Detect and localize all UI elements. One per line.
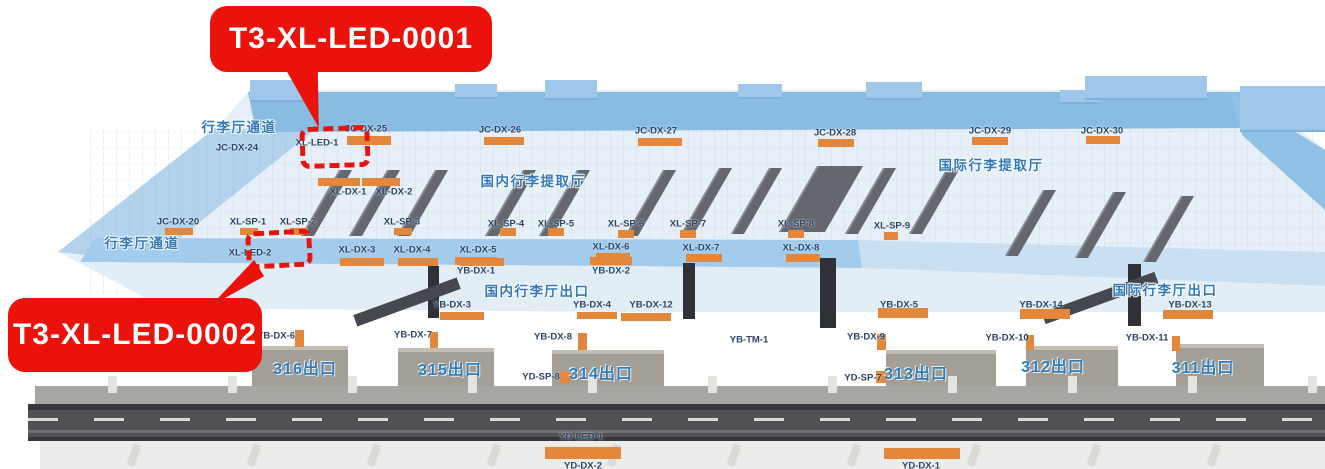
device-orange-marker — [1172, 336, 1180, 351]
roof-block — [1060, 90, 1100, 104]
device-label-YB-DX-12: YB-DX-12 — [629, 300, 672, 311]
sidewalk-pillar — [348, 376, 357, 393]
device-label-YB-DX-7: YB-DX-7 — [394, 330, 432, 341]
device-label-XL-SP-4: XL-SP-4 — [488, 219, 524, 230]
exit-label-311出口: 311出口 — [1172, 354, 1235, 378]
device-orange-bar — [440, 312, 484, 320]
device-orange-bar — [972, 137, 1008, 145]
device-label-YD-SP-8: YD-SP-8 — [522, 372, 559, 383]
device-label-JC-DX-29: JC-DX-29 — [969, 126, 1011, 137]
exit-label-314出口: 314出口 — [569, 360, 633, 384]
sidewalk-pillar — [228, 376, 237, 393]
device-label-YB-DX-3: YB-DX-3 — [433, 300, 471, 311]
top-corridor — [240, 90, 1325, 135]
device-label-YB-DX-10: YB-DX-10 — [985, 333, 1028, 344]
device-orange-bar — [686, 254, 722, 262]
device-label-JC-DX-20: JC-DX-20 — [157, 217, 199, 228]
device-label-YD-SP-7: YD-SP-7 — [844, 373, 881, 384]
sidewalk-pillar — [1188, 376, 1197, 393]
device-orange-bar — [638, 138, 682, 146]
device-label-XL-DX-2: XL-DX-2 — [376, 187, 413, 198]
road-edge-top — [28, 404, 1325, 410]
device-label-YD-DX-1: YD-DX-1 — [902, 461, 940, 469]
exit-label-316出口: 316出口 — [273, 355, 337, 379]
device-orange-bar — [1086, 136, 1120, 144]
area-label-国际行李提取厅: 国际行李提取厅 — [939, 154, 1044, 174]
apron-pillar — [247, 443, 261, 466]
apron — [40, 441, 1325, 469]
device-orange-bar — [818, 139, 854, 147]
apron-pillar — [967, 443, 981, 466]
device-orange-bar — [394, 228, 412, 235]
device-label-XL-DX-7: XL-DX-7 — [683, 243, 720, 254]
right-lower-band — [850, 238, 1325, 288]
road-stripe — [28, 430, 1325, 433]
baggage-carousel — [1143, 196, 1194, 262]
callout-led-0002: T3-XL-LED-0002 — [8, 298, 262, 372]
device-orange-bar — [884, 448, 960, 459]
device-label-YD-DX-2: YD-DX-2 — [564, 461, 602, 469]
device-orange-bar — [362, 178, 400, 186]
device-label-XL-SP-8: XL-SP-8 — [778, 219, 814, 230]
sidewalk — [35, 386, 1325, 408]
device-label-JC-DX-30: JC-DX-30 — [1081, 126, 1123, 137]
device-orange-bar — [618, 230, 634, 238]
device-orange-bar — [1163, 310, 1213, 319]
device-label-YB-DX-4: YB-DX-4 — [573, 300, 611, 311]
area-label-行李厅通道: 行李厅通道 — [202, 116, 277, 136]
device-label-XL-DX-5: XL-DX-5 — [460, 245, 497, 256]
area-label-行李厅通道: 行李厅通道 — [105, 232, 180, 252]
device-label-XL-SP-2: XL-SP-2 — [280, 217, 316, 228]
device-orange-marker — [295, 330, 304, 347]
device-orange-bar — [1020, 309, 1070, 319]
device-label-YB-DX-11: YB-DX-11 — [1126, 333, 1169, 344]
exit-label-313出口: 313出口 — [884, 360, 948, 384]
apron-pillar — [727, 443, 741, 466]
roof-block — [1240, 86, 1325, 132]
device-orange-marker — [578, 333, 587, 350]
info-tower — [683, 263, 695, 319]
baggage-carousel — [1005, 190, 1056, 256]
device-label-JC-DX-27: JC-DX-27 — [635, 126, 677, 137]
apron-pillar — [367, 443, 381, 466]
device-label-XL-SP-7: XL-SP-7 — [670, 219, 706, 230]
device-orange-bar — [788, 230, 804, 238]
device-orange-bar — [455, 257, 497, 265]
right-wing — [1180, 88, 1325, 213]
device-label-JC-DX-24: JC-DX-24 — [216, 143, 258, 154]
road — [28, 410, 1325, 440]
device-orange-bar — [398, 258, 438, 266]
device-orange-bar — [318, 178, 360, 186]
apron-pillar — [1207, 443, 1221, 466]
sidewalk-pillar — [708, 376, 717, 393]
baggage-carousel — [731, 168, 782, 234]
apron-pillar — [1087, 443, 1101, 466]
device-label-YB-DX-9: YB-DX-9 — [847, 332, 885, 343]
device-label-XL-DX-6: XL-DX-6 — [593, 242, 630, 253]
device-label-YB-DX-14: YB-DX-14 — [1019, 300, 1062, 311]
apron-pillar — [127, 443, 141, 466]
area-label-国际行李厅出口: 国际行李厅出口 — [1113, 279, 1218, 299]
device-label-JC-DX-28: JC-DX-28 — [814, 128, 856, 139]
terminal-t3-floorplan-map: T3-XL-LED-0001 T3-XL-LED-0002 行李厅通道行李厅通道… — [0, 0, 1325, 469]
device-label-JC-DX-26: JC-DX-26 — [479, 125, 521, 136]
device-label-XL-SP-9: XL-SP-9 — [874, 221, 910, 232]
device-label-YB-DX-13: YB-DX-13 — [1168, 300, 1211, 311]
device-orange-bar — [545, 447, 621, 459]
area-label-国内行李厅出口: 国内行李厅出口 — [485, 280, 590, 300]
device-label-YB-DX-1: YB-DX-1 — [457, 266, 495, 277]
device-label-XL-DX-1: XL-DX-1 — [330, 187, 367, 198]
sidewalk-pillar — [828, 376, 837, 393]
device-label-YB-DX-5: YB-DX-5 — [880, 300, 918, 311]
baggage-carousel — [909, 168, 960, 234]
device-label-XL-SP-3: XL-SP-3 — [384, 217, 420, 228]
device-label-XL-DX-8: XL-DX-8 — [783, 243, 820, 254]
roof-block — [866, 82, 922, 100]
callout-led-0001: T3-XL-LED-0001 — [210, 6, 492, 72]
device-label-XL-SP-5: XL-SP-5 — [538, 219, 574, 230]
device-orange-bar — [621, 313, 671, 321]
baggage-carousel — [1075, 192, 1126, 258]
device-label-YB-DX-8: YB-DX-8 — [534, 332, 572, 343]
device-orange-bar — [884, 232, 898, 240]
area-label-国内行李提取厅: 国内行李提取厅 — [481, 170, 586, 190]
led-0001-highlight-box — [299, 125, 370, 169]
roof-block — [455, 84, 497, 99]
device-orange-bar — [680, 230, 696, 238]
device-orange-bar — [340, 258, 384, 266]
callout-led-0002-label: T3-XL-LED-0002 — [13, 318, 257, 352]
road-center-line — [28, 418, 1325, 421]
exit-label-312出口: 312出口 — [1021, 353, 1085, 377]
road-edge-bottom — [28, 437, 1325, 441]
device-label-XL-DX-4: XL-DX-4 — [394, 245, 431, 256]
apron-pillar — [847, 443, 861, 466]
info-tower — [820, 258, 836, 328]
roof-block — [1085, 76, 1207, 100]
callout-led-0001-label: T3-XL-LED-0001 — [229, 22, 473, 56]
device-label-YB-DX-6: YB-DX-6 — [257, 331, 295, 342]
roof-block — [738, 84, 782, 99]
sidewalk-pillar — [108, 376, 117, 393]
device-label-XL-DX-3: XL-DX-3 — [339, 245, 376, 256]
device-orange-bar — [786, 254, 820, 262]
device-label-XL-SP-1: XL-SP-1 — [230, 217, 266, 228]
device-label-YB-DX-2: YB-DX-2 — [592, 266, 630, 277]
apron-pillar — [487, 443, 501, 466]
sidewalk-pillar — [948, 376, 957, 393]
device-label-XL-SP-6: XL-SP-6 — [608, 219, 644, 230]
device-orange-bar — [577, 312, 617, 319]
roof-block — [545, 80, 597, 100]
sidewalk-pillar — [1308, 376, 1317, 393]
device-label-YD-LED-1: YD-LED-1 — [559, 432, 603, 443]
device-orange-bar — [590, 257, 632, 265]
exit-label-315出口: 315出口 — [418, 356, 482, 380]
sidewalk-pillar — [1068, 376, 1077, 393]
device-label-YB-TM-1: YB-TM-1 — [730, 335, 769, 346]
device-orange-bar — [484, 137, 524, 145]
